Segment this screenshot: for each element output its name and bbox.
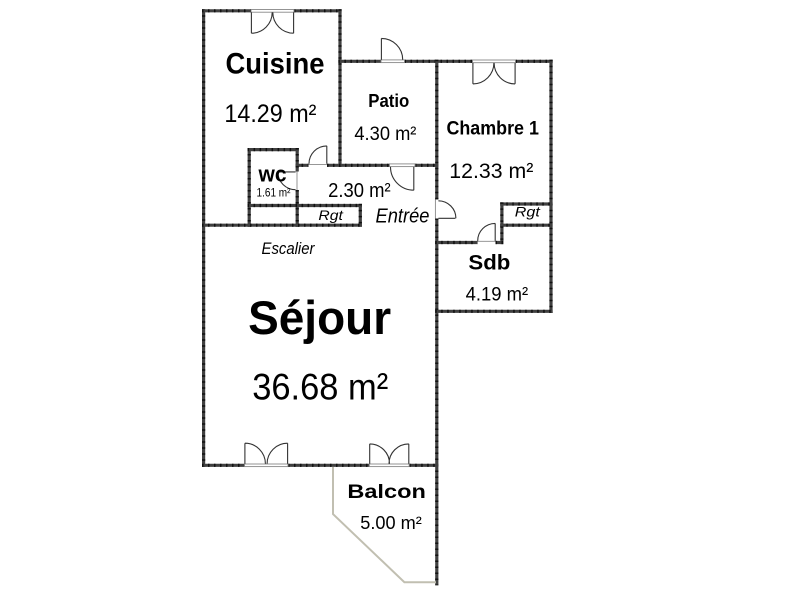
- svg-text:Patio: Patio: [368, 90, 409, 111]
- svg-text:12.33 m²: 12.33 m²: [449, 159, 533, 183]
- svg-text:4.19 m²: 4.19 m²: [466, 284, 529, 306]
- svg-text:wc: wc: [258, 162, 287, 187]
- svg-text:36.68 m²: 36.68 m²: [252, 365, 388, 407]
- svg-text:Escalier: Escalier: [262, 239, 316, 258]
- svg-text:Sdb: Sdb: [468, 251, 510, 275]
- svg-text:14.29 m²: 14.29 m²: [224, 100, 316, 128]
- svg-text:Rgt: Rgt: [515, 204, 541, 220]
- svg-text:5.00 m²: 5.00 m²: [360, 513, 422, 533]
- svg-text:Entrée: Entrée: [376, 204, 430, 227]
- svg-text:Rgt: Rgt: [318, 207, 344, 223]
- svg-text:4.30 m²: 4.30 m²: [354, 123, 416, 145]
- svg-text:Balcon: Balcon: [347, 482, 426, 503]
- svg-text:Séjour: Séjour: [248, 291, 391, 344]
- svg-text:Cuisine: Cuisine: [226, 48, 325, 81]
- svg-text:1.61 m²: 1.61 m²: [257, 185, 291, 199]
- svg-text:2.30 m²: 2.30 m²: [328, 180, 391, 202]
- svg-text:Chambre 1: Chambre 1: [446, 117, 539, 139]
